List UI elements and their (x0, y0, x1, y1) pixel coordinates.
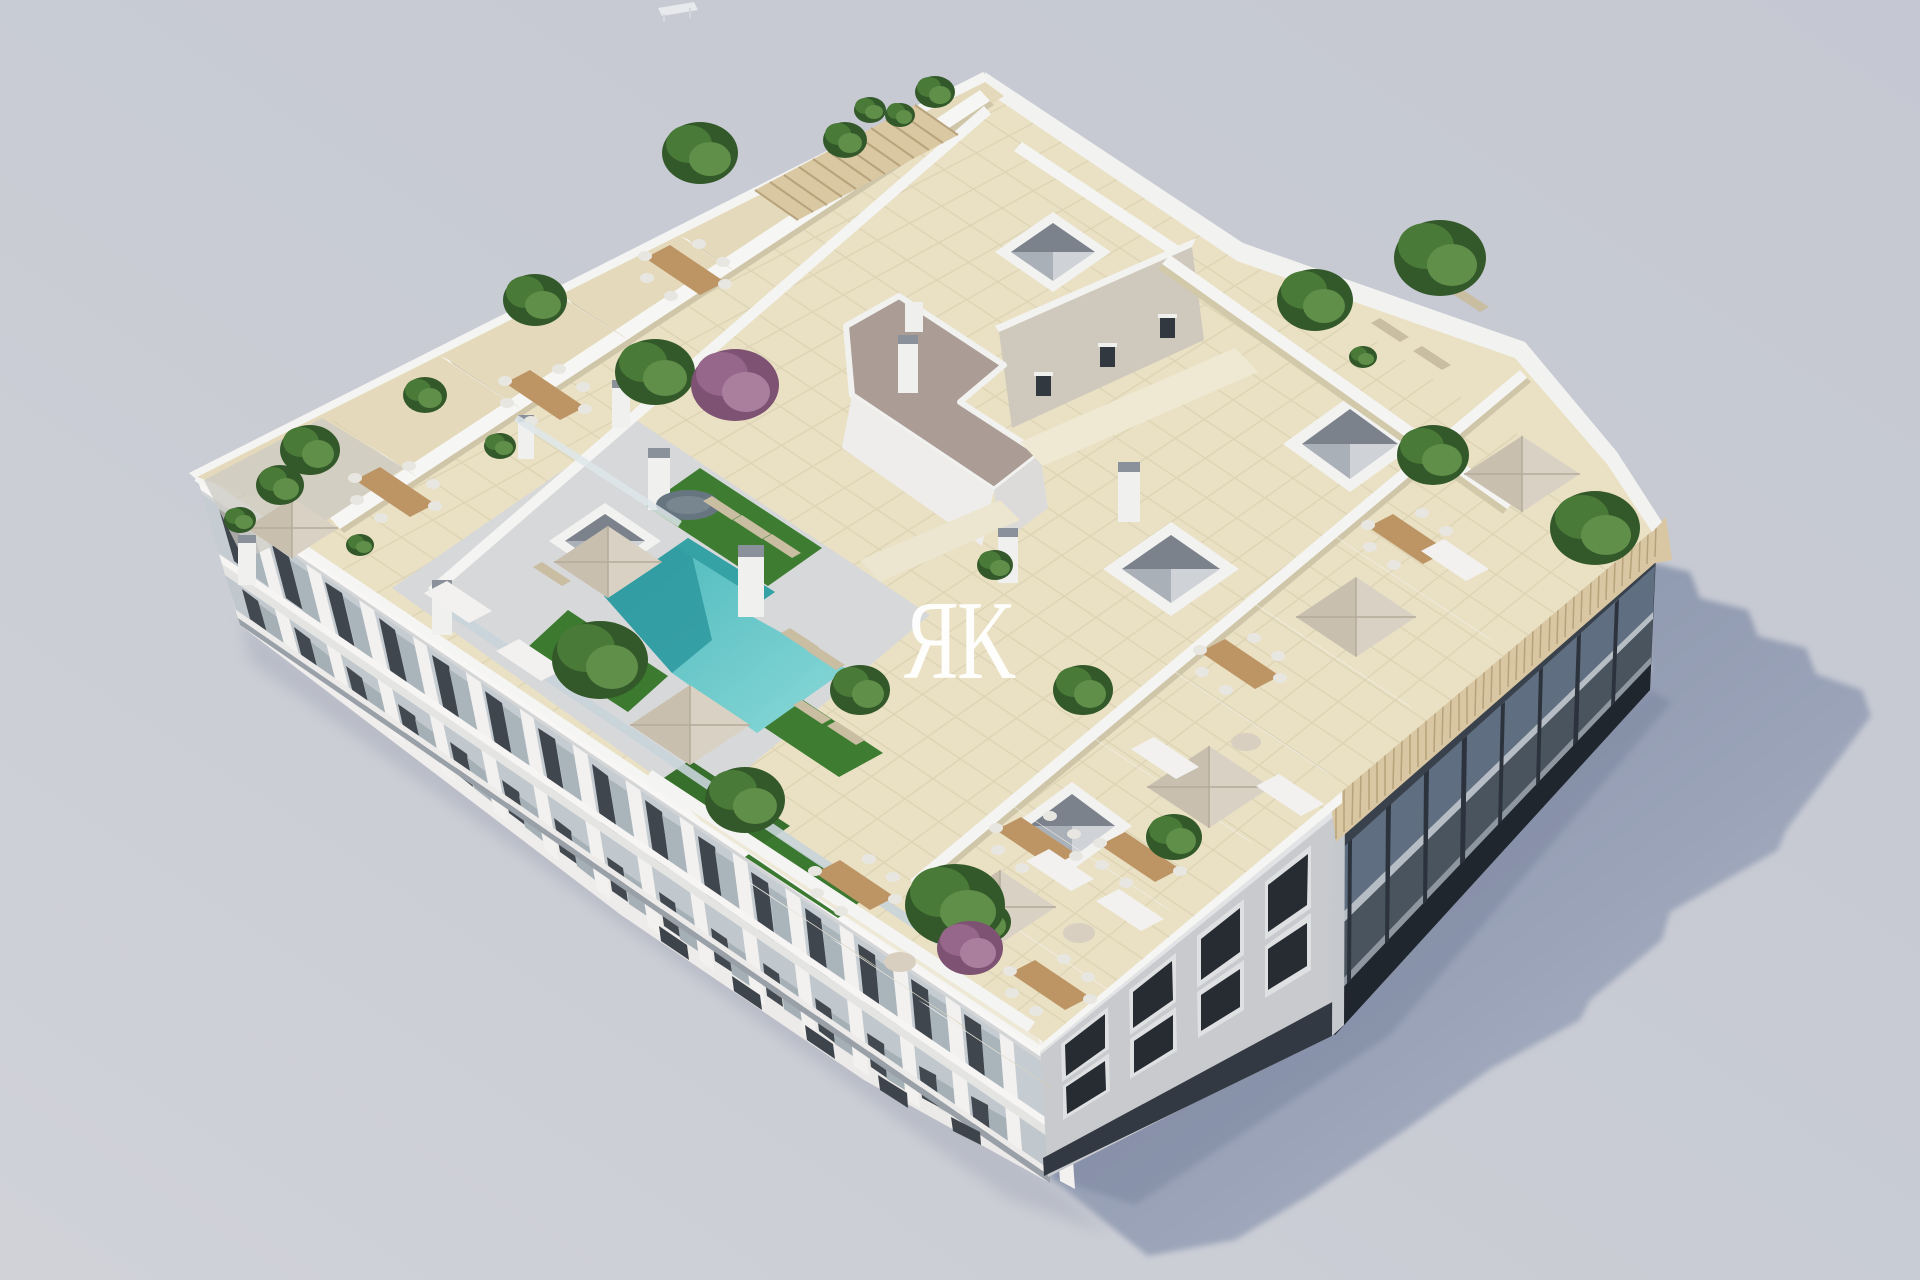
svg-text:ЯK: ЯK (904, 580, 1015, 703)
